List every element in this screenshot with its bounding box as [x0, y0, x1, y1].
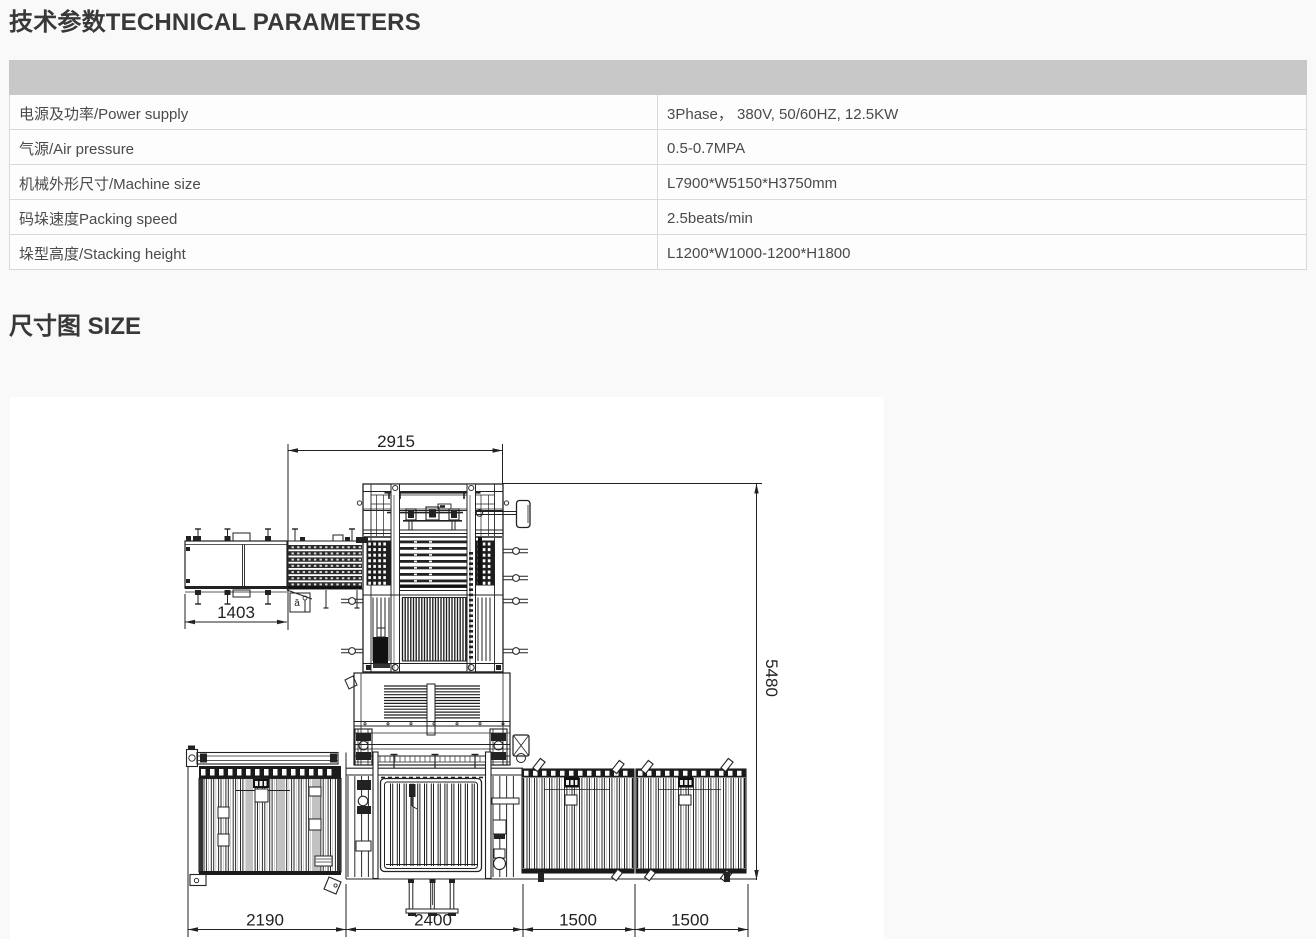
svg-text:1403: 1403: [217, 603, 255, 622]
svg-text:2915: 2915: [377, 432, 415, 451]
svg-text:1500: 1500: [671, 911, 709, 930]
svg-text:5480: 5480: [762, 659, 781, 697]
svg-text:2190: 2190: [246, 911, 284, 930]
svg-text:1500: 1500: [559, 911, 597, 930]
svg-text:ā: ā: [294, 598, 300, 609]
